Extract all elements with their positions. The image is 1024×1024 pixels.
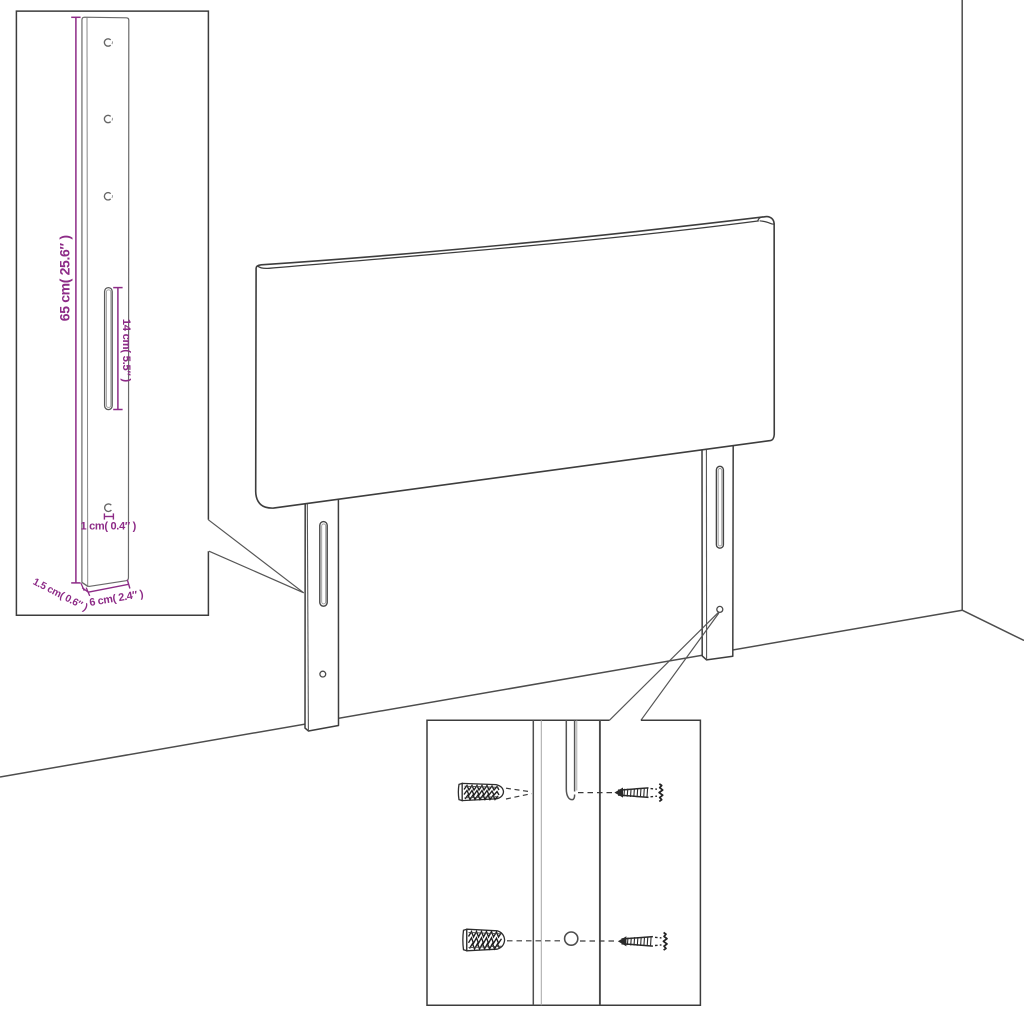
svg-text:65 cm( 25.6″ ): 65 cm( 25.6″ )	[57, 235, 73, 321]
svg-text:14 cm( 5.5″ ): 14 cm( 5.5″ )	[120, 319, 132, 383]
svg-text:1 cm( 0.4″ ): 1 cm( 0.4″ )	[81, 521, 137, 533]
